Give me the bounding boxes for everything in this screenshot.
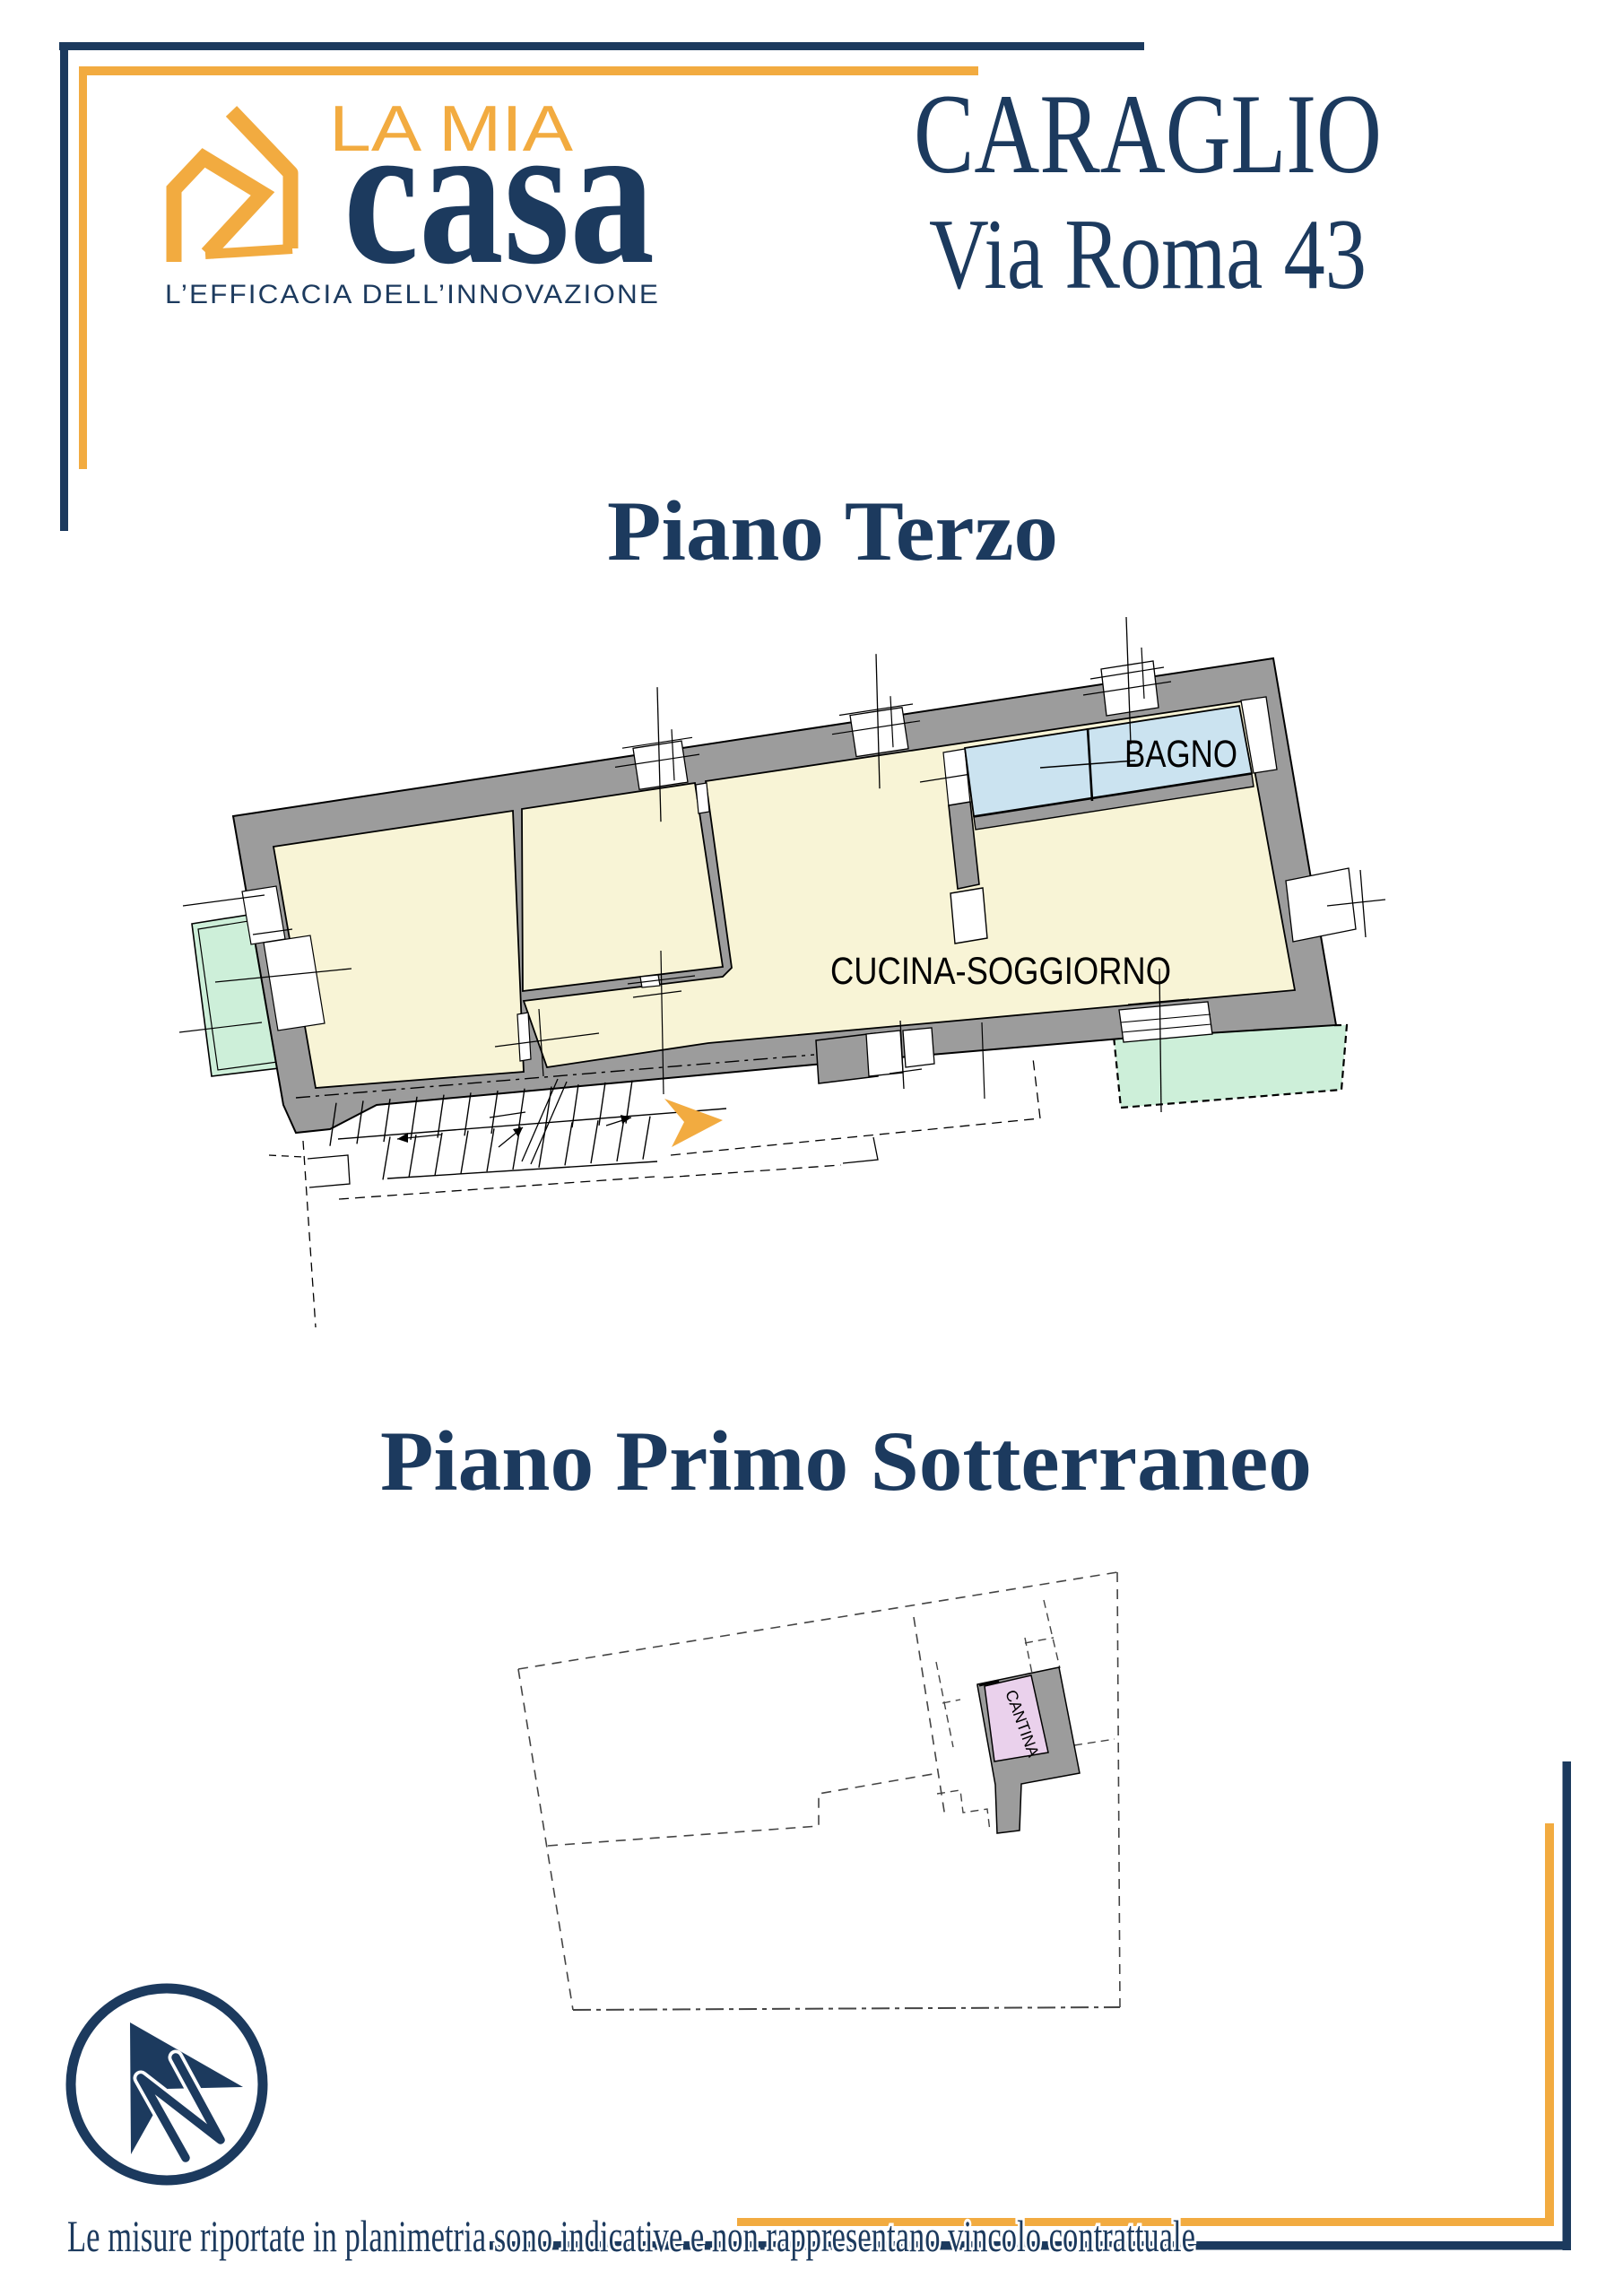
svg-text:Le misure riportate in planime: Le misure riportate in planimetria sono …	[67, 2211, 1195, 2261]
svg-text:Via Roma 43: Via Roma 43	[929, 199, 1367, 310]
svg-text:casa: casa	[343, 81, 655, 307]
svg-text:BAGNO: BAGNO	[1124, 733, 1237, 776]
svg-text:L’EFFICACIA DELL’INNOVAZIONE: L’EFFICACIA DELL’INNOVAZIONE	[165, 280, 660, 309]
svg-text:Piano Primo Sotterraneo: Piano Primo Sotterraneo	[380, 1413, 1312, 1509]
svg-text:CUCINA-SOGGIORNO: CUCINA-SOGGIORNO	[830, 950, 1171, 993]
svg-text:CARAGLIO: CARAGLIO	[914, 72, 1382, 197]
svg-text:Piano Terzo: Piano Terzo	[607, 483, 1058, 578]
